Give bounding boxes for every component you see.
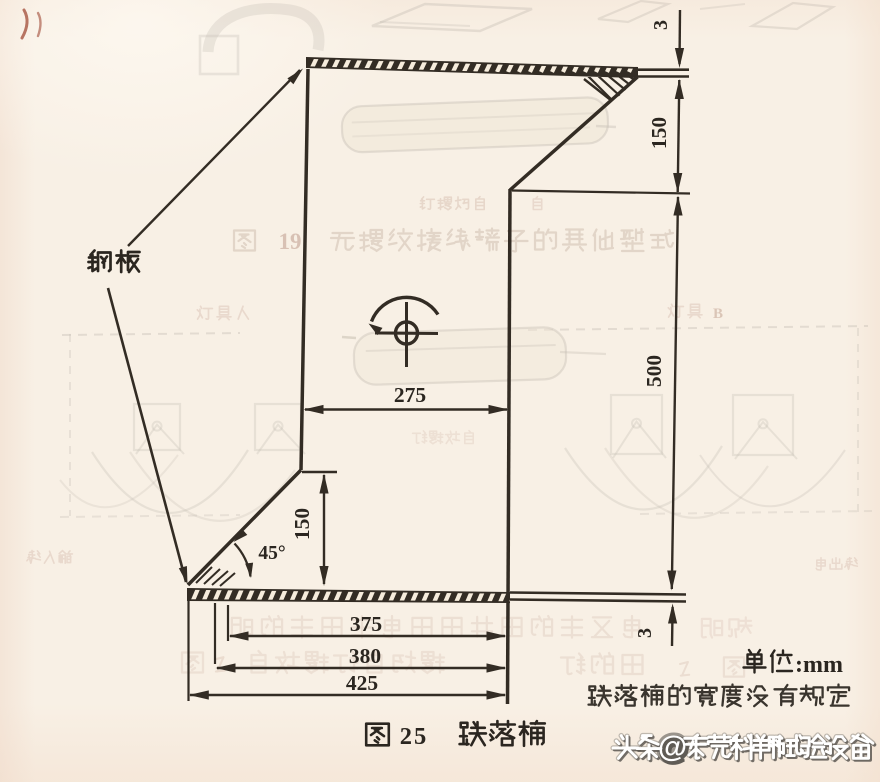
svg-text::mm: :mm — [795, 652, 843, 678]
svg-text:150: 150 — [647, 117, 671, 149]
svg-text:19: 19 — [279, 229, 302, 254]
svg-text:150: 150 — [290, 508, 314, 540]
svg-text:275: 275 — [394, 383, 426, 407]
svg-text:425: 425 — [346, 671, 378, 695]
svg-text:380: 380 — [349, 644, 381, 668]
svg-text:3: 3 — [650, 20, 672, 30]
svg-text:25: 25 — [400, 723, 429, 750]
svg-text:3: 3 — [634, 628, 656, 638]
svg-text:45°: 45° — [258, 543, 285, 564]
svg-text:375: 375 — [350, 612, 382, 636]
svg-text:500: 500 — [642, 355, 666, 387]
svg-text:B: B — [713, 306, 723, 322]
svg-text:@: @ — [658, 731, 687, 764]
